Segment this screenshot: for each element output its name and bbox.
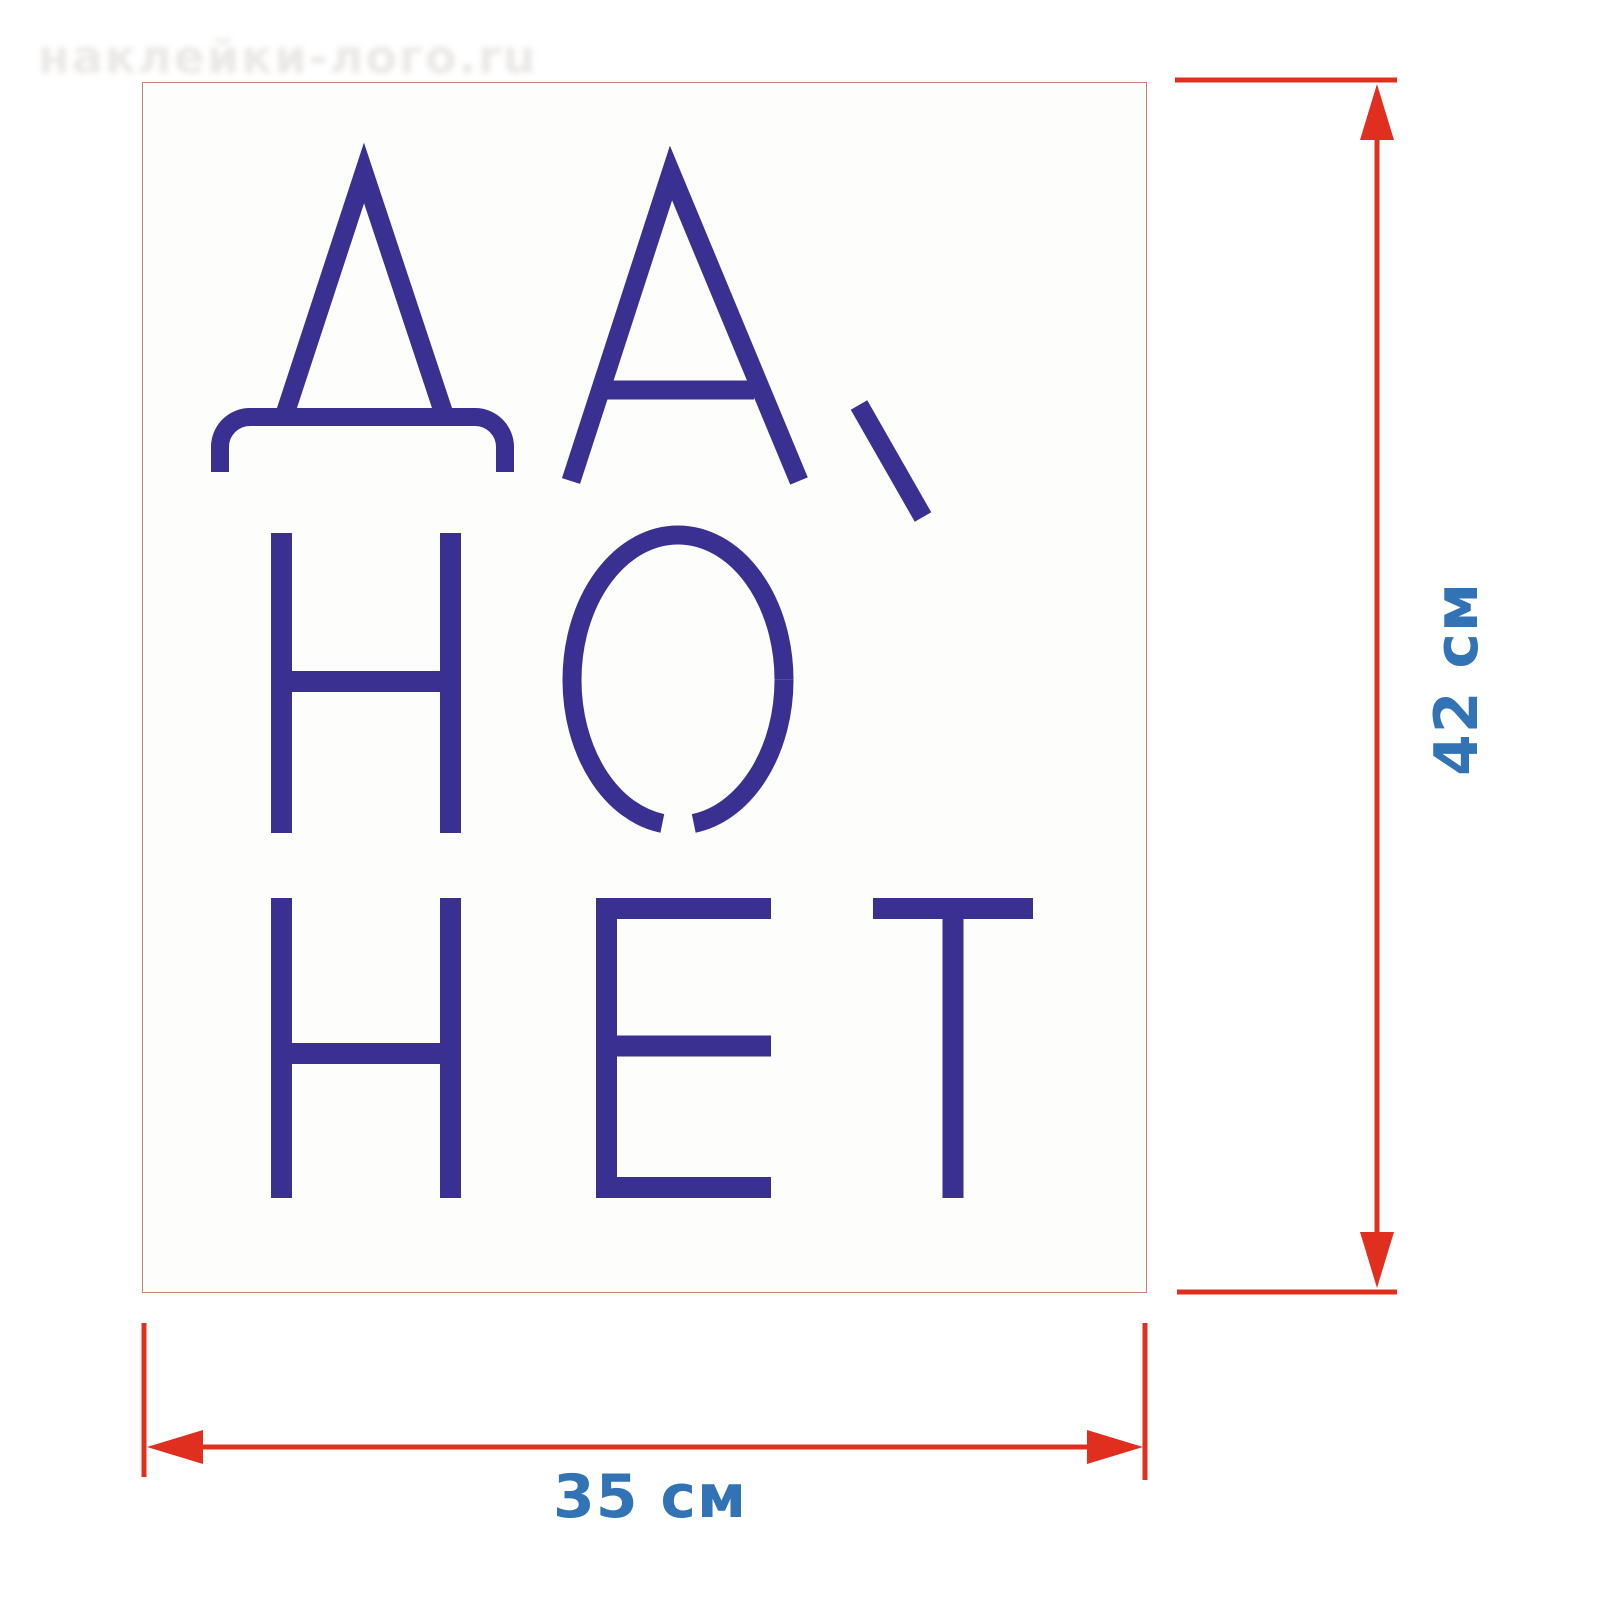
arrowhead-down: [1360, 1232, 1394, 1288]
arrowhead-up: [1360, 84, 1394, 140]
product-image: наклейки-лого.ru ДА, НО НЕТ: [0, 0, 1600, 1600]
letter-T: [873, 909, 1033, 1199]
sticker-sheet: ДА, НО НЕТ: [142, 82, 1147, 1293]
letter-N-row2: [271, 533, 461, 833]
letter-D: [220, 173, 505, 472]
sticker-lettering: [143, 83, 1148, 1294]
letter-O: [572, 535, 784, 825]
comma-stroke: [859, 405, 923, 517]
width-label: 35 см: [450, 1462, 850, 1532]
arrowhead-right: [1087, 1430, 1143, 1464]
letter-A: [571, 173, 799, 481]
height-dimension: [1175, 80, 1397, 1292]
letter-N-row3: [271, 898, 461, 1198]
arrowhead-left: [147, 1430, 203, 1464]
watermark: наклейки-лого.ru: [38, 30, 558, 86]
letter-E: [597, 898, 771, 1198]
height-label: 42 см: [1417, 479, 1497, 879]
width-dimension: [144, 1323, 1145, 1480]
